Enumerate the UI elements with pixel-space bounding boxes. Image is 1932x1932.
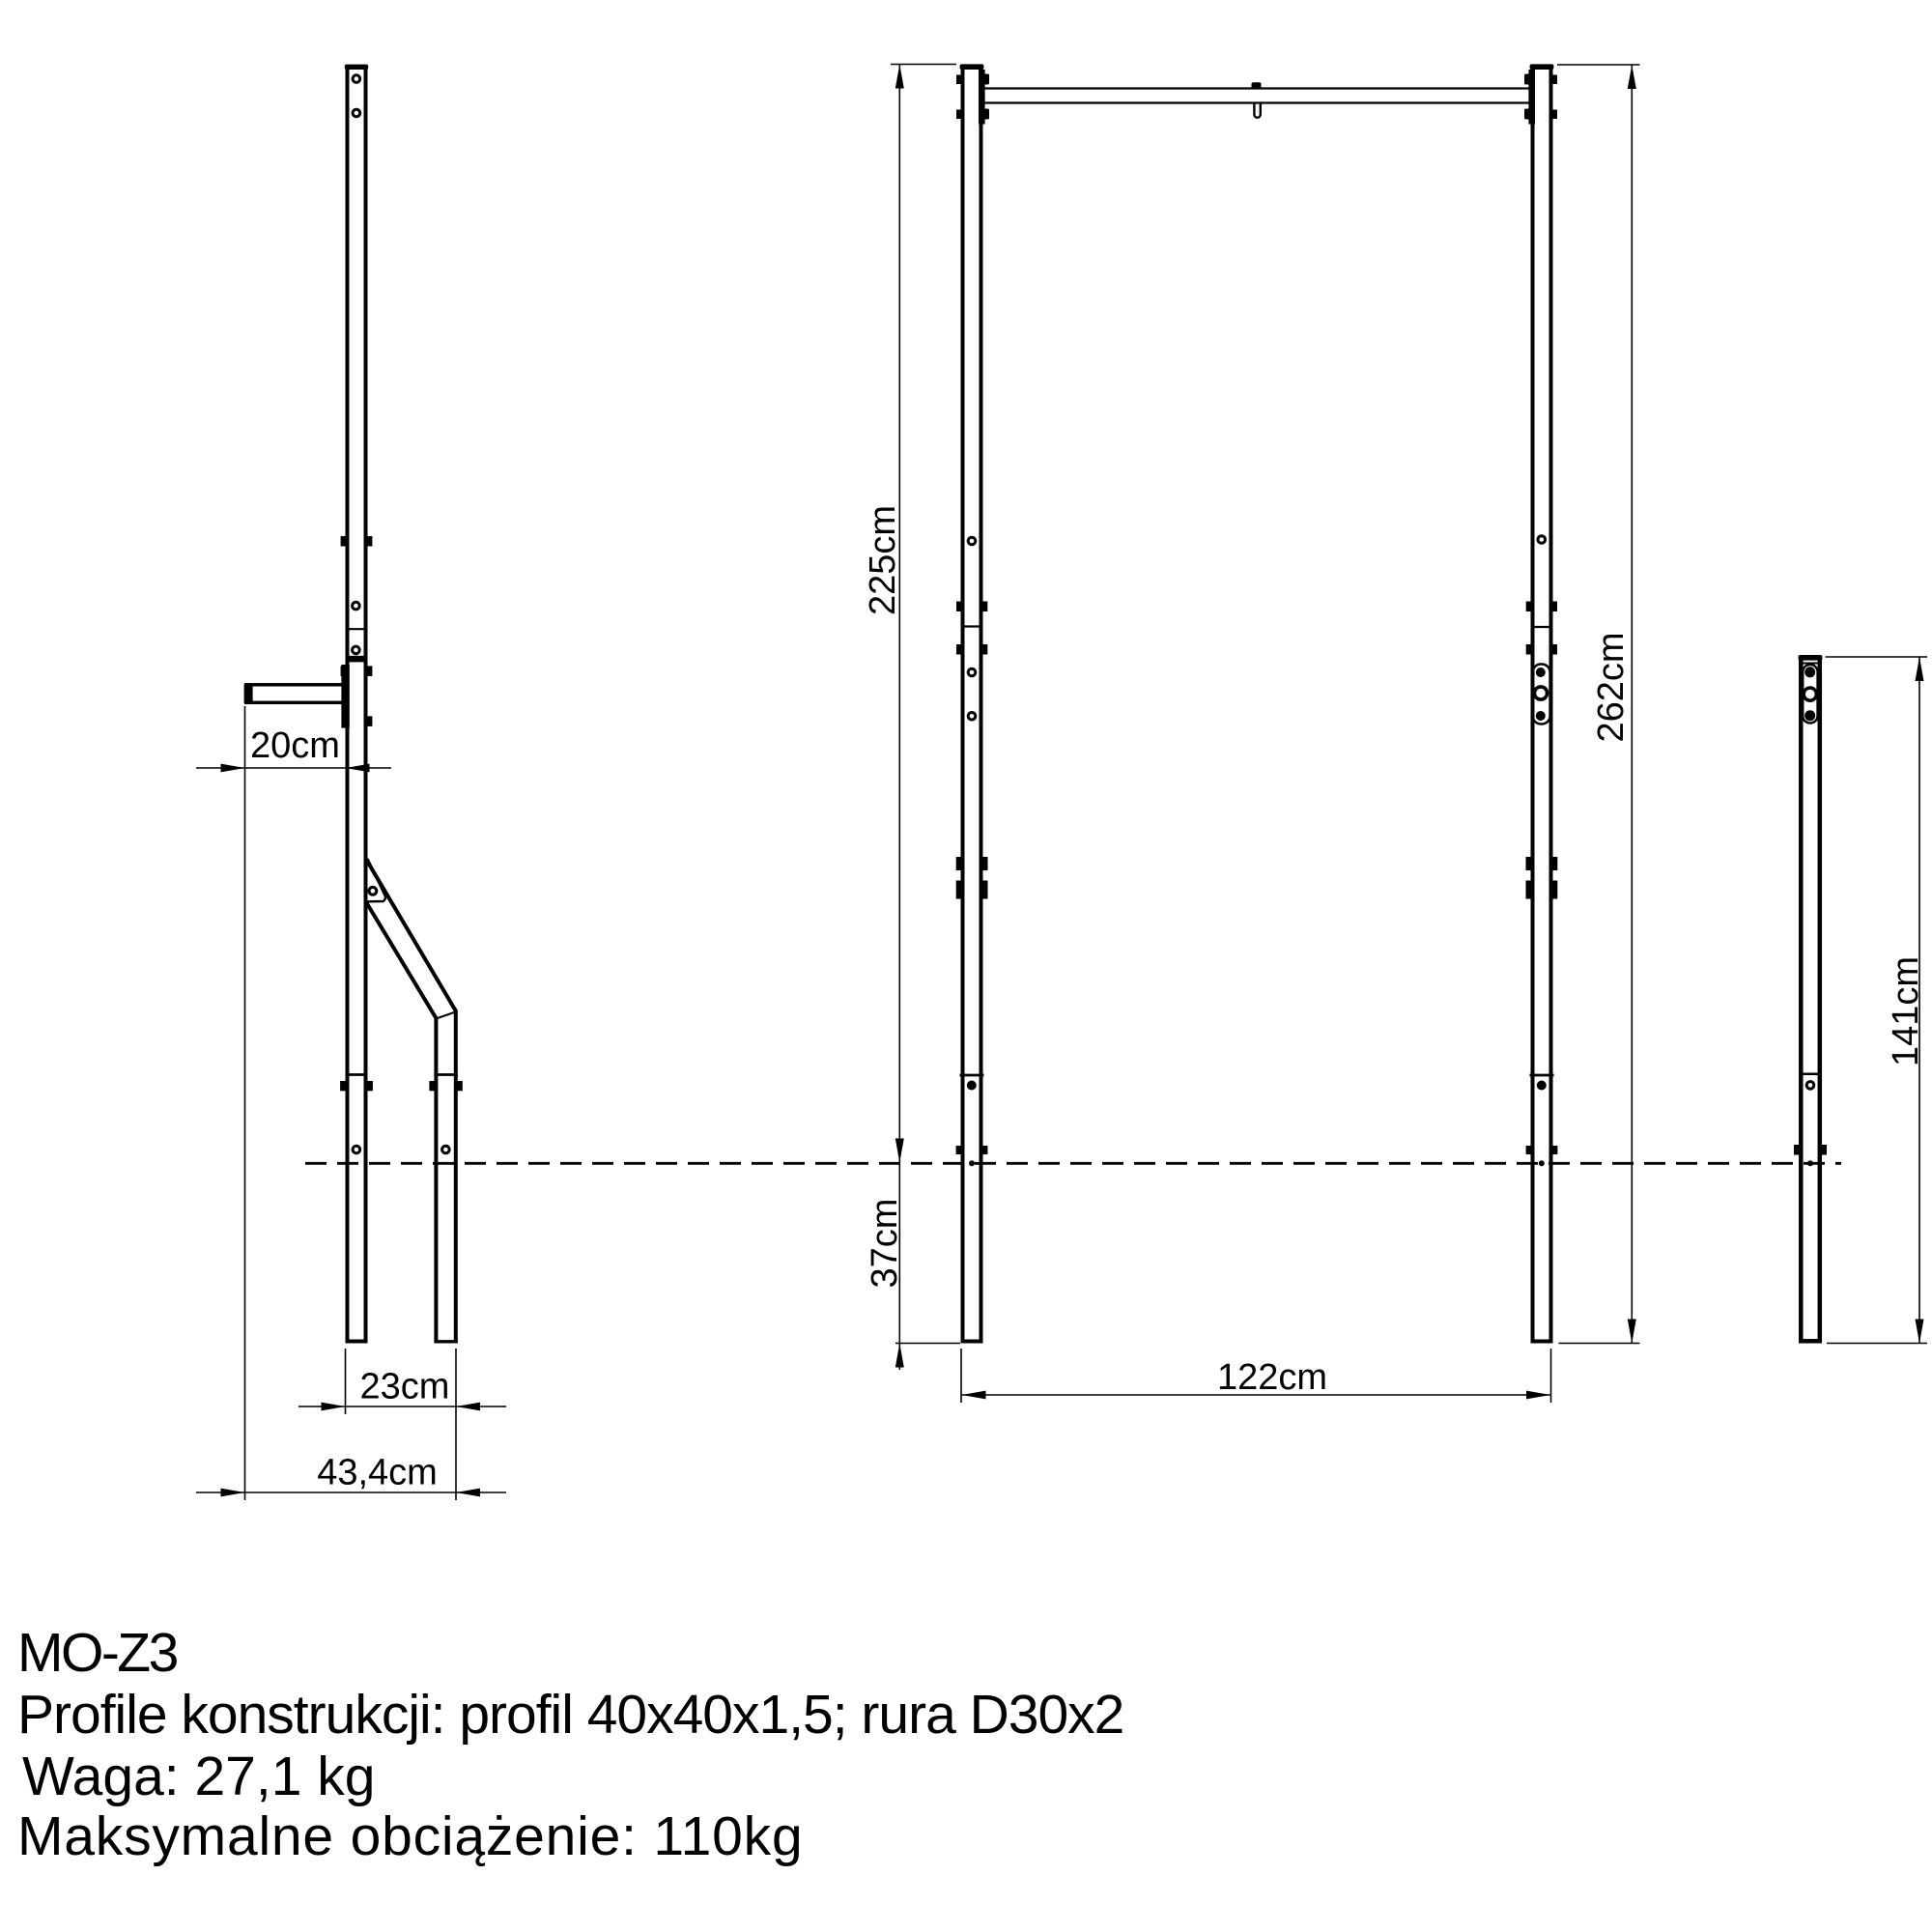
svg-text:262cm: 262cm — [1591, 632, 1632, 742]
svg-text:20cm: 20cm — [250, 725, 340, 766]
svg-text:122cm: 122cm — [1217, 1357, 1327, 1398]
svg-text:225cm: 225cm — [863, 505, 903, 615]
svg-text:Maksymalne obciążenie: 110kg: Maksymalne obciążenie: 110kg — [17, 1805, 803, 1867]
svg-text:MO-Z3: MO-Z3 — [17, 1622, 178, 1684]
svg-text:141cm: 141cm — [1886, 956, 1926, 1066]
svg-text:23cm: 23cm — [360, 1367, 450, 1407]
svg-text:Profile konstrukcji: profil 40: Profile konstrukcji: profil 40x40x1,5; r… — [17, 1684, 1123, 1746]
svg-text:Waga: 27,1 kg: Waga: 27,1 kg — [22, 1746, 375, 1807]
svg-text:37cm: 37cm — [865, 1199, 905, 1289]
svg-text:43,4cm: 43,4cm — [317, 1453, 438, 1493]
